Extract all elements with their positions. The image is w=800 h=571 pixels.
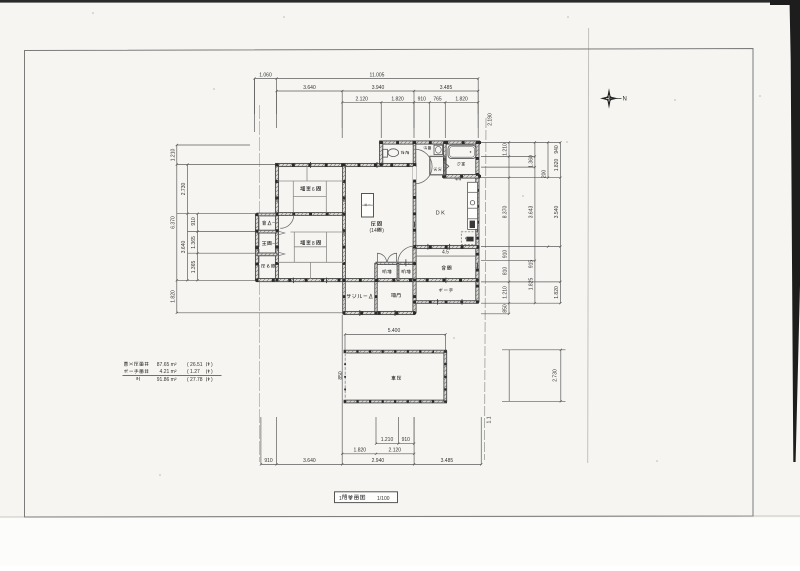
svg-text:1.820: 1.820 xyxy=(554,159,560,172)
svg-text:915: 915 xyxy=(528,260,534,269)
svg-text:1.1: 1.1 xyxy=(487,416,493,423)
svg-text:1.820: 1.820 xyxy=(455,96,468,102)
svg-text:1.820: 1.820 xyxy=(170,290,176,303)
svg-text:1.825: 1.825 xyxy=(528,278,534,291)
svg-text:(14: (14 xyxy=(370,228,377,234)
svg-text:3.485: 3.485 xyxy=(440,85,453,91)
svg-text:11.005: 11.005 xyxy=(370,73,385,79)
svg-text:910: 910 xyxy=(402,437,411,443)
svg-text:1.060: 1.060 xyxy=(259,73,272,79)
svg-text:3.540: 3.540 xyxy=(554,206,560,219)
svg-text:6: 6 xyxy=(312,187,315,193)
svg-text:910: 910 xyxy=(418,96,427,102)
svg-text:940: 940 xyxy=(554,145,560,154)
svg-text:( 26.51: ( 26.51 xyxy=(187,362,203,368)
svg-text:1.365: 1.365 xyxy=(191,236,197,249)
svg-text:8: 8 xyxy=(312,241,315,247)
svg-text:( 1.27: ( 1.27 xyxy=(187,369,200,375)
svg-text:2.940: 2.940 xyxy=(372,458,385,464)
svg-text:4.5: 4.5 xyxy=(442,249,449,255)
svg-text:( 27.78: ( 27.78 xyxy=(187,377,203,383)
svg-text:2.730: 2.730 xyxy=(553,369,559,382)
svg-text:910: 910 xyxy=(191,217,197,226)
svg-text:6.370: 6.370 xyxy=(170,216,176,229)
svg-text:2.120: 2.120 xyxy=(389,447,402,453)
svg-text:3.640: 3.640 xyxy=(303,458,316,464)
svg-text:3.640: 3.640 xyxy=(181,241,187,254)
svg-text:N: N xyxy=(623,97,627,103)
svg-text:1: 1 xyxy=(339,496,342,502)
svg-text:1.210: 1.210 xyxy=(381,437,394,443)
svg-text:87.65 m²: 87.65 m² xyxy=(157,362,177,368)
svg-text:1.820: 1.820 xyxy=(554,286,560,299)
svg-text:1.210: 1.210 xyxy=(503,143,509,156)
svg-text:2.190: 2.190 xyxy=(488,113,494,126)
svg-text:910: 910 xyxy=(503,250,509,259)
svg-text:3.940: 3.940 xyxy=(372,85,385,91)
svg-text:1.360: 1.360 xyxy=(528,155,534,168)
svg-text:2.730: 2.730 xyxy=(181,183,187,196)
svg-text:1.210: 1.210 xyxy=(503,286,509,299)
svg-text:200: 200 xyxy=(542,170,548,179)
svg-text:1/100: 1/100 xyxy=(377,496,390,502)
svg-text:3.643: 3.643 xyxy=(528,206,534,219)
svg-text:1.820: 1.820 xyxy=(354,447,367,453)
svg-text:3.485: 3.485 xyxy=(441,458,454,464)
svg-text:91.86 m²: 91.86 m² xyxy=(157,377,177,383)
svg-text:8.370: 8.370 xyxy=(503,206,509,219)
svg-text:4.21 m²: 4.21 m² xyxy=(160,369,177,375)
svg-text:DK: DK xyxy=(436,211,447,217)
svg-text:1.365: 1.365 xyxy=(191,261,197,274)
svg-text:5.400: 5.400 xyxy=(388,328,401,334)
svg-text:810: 810 xyxy=(503,267,509,276)
svg-text:1.820: 1.820 xyxy=(391,96,404,102)
svg-text:910: 910 xyxy=(264,458,273,464)
svg-text:3.640: 3.640 xyxy=(303,85,316,91)
svg-text:850: 850 xyxy=(338,371,344,380)
svg-text:1.210: 1.210 xyxy=(170,149,176,162)
svg-text:765: 765 xyxy=(433,96,442,102)
svg-text:850: 850 xyxy=(503,304,509,313)
svg-text:2.120: 2.120 xyxy=(355,96,368,102)
